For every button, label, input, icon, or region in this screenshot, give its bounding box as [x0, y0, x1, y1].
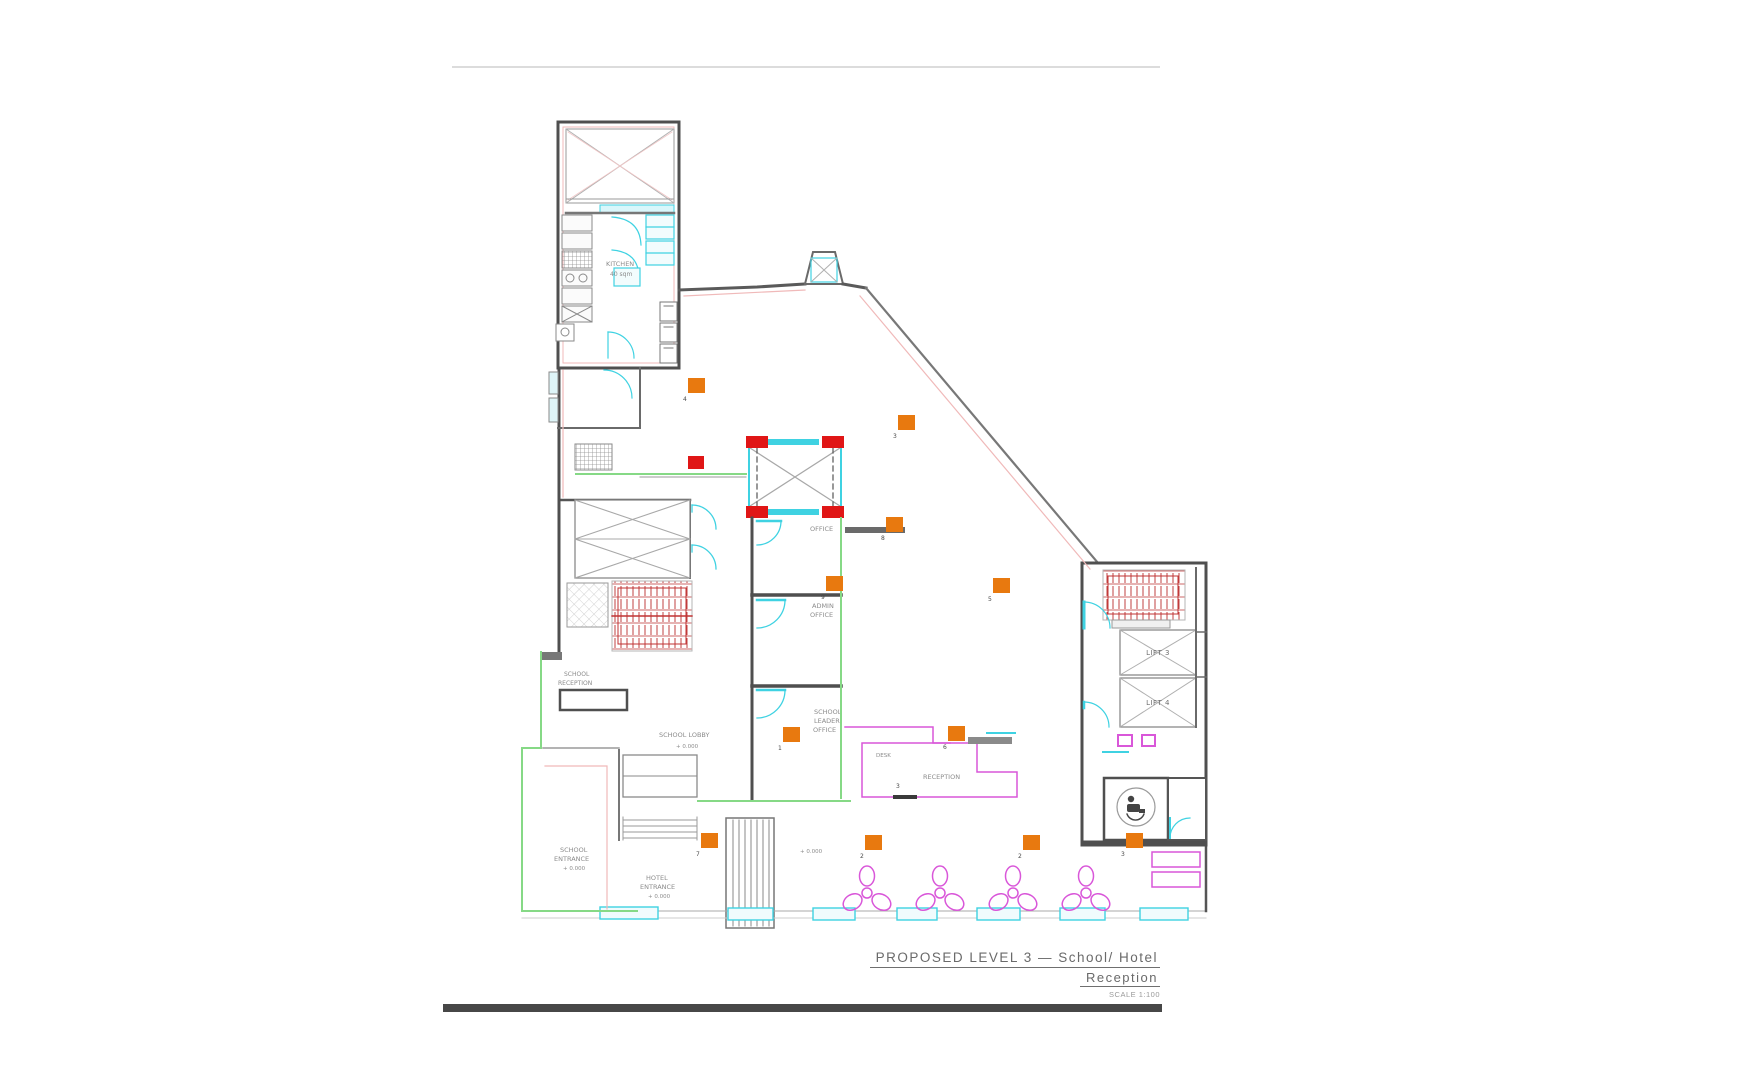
chair-clusters — [840, 866, 1113, 914]
chair-cluster — [986, 866, 1040, 914]
office-column: OFFICE ADMIN OFFICE SCHOOL LEADER OFFICE — [752, 518, 842, 800]
facade — [522, 845, 1206, 920]
camera-marker: 2 — [1018, 835, 1040, 860]
svg-text:3: 3 — [1121, 851, 1125, 858]
wc-room — [1104, 778, 1168, 840]
lift-3: LIFT 3 — [1120, 630, 1196, 675]
svg-text:1: 1 — [778, 745, 782, 752]
floor-plan: KITCHEN 40 sqm — [522, 122, 1206, 928]
chair-cluster — [840, 866, 894, 914]
camera-marker: 2 — [860, 835, 882, 860]
office-label: OFFICE — [810, 525, 833, 533]
hotel-entrance-label-1: HOTEL — [646, 874, 668, 882]
svg-text:3: 3 — [893, 433, 897, 440]
school-entrance-label-2: ENTRANCE — [554, 855, 589, 863]
drawing-title-line1: PROPOSED LEVEL 3 — School/ Hotel — [870, 950, 1160, 968]
reception-number: 3 — [896, 783, 900, 790]
lounge-tables — [1152, 852, 1200, 887]
kitchen-area-label: 40 sqm — [610, 271, 632, 278]
shelf-block — [575, 444, 612, 470]
hotel-entrance-label-2: ENTRANCE — [640, 883, 675, 891]
hotel-core: LIFT 3 LIFT 4 — [1082, 563, 1206, 887]
drawing-scale: SCALE 1:100 — [1109, 990, 1160, 999]
page: KITCHEN 40 sqm — [0, 0, 1755, 1080]
school-stair — [612, 581, 692, 651]
camera-marker: 6 — [943, 726, 965, 751]
lift-4: LIFT 4 — [1120, 678, 1196, 727]
camera-marker: 9 — [821, 576, 843, 601]
camera-marker: 1 — [778, 727, 800, 752]
reception-desk — [560, 690, 627, 710]
wall-junction-marker — [688, 456, 704, 469]
svg-text:2: 2 — [1018, 853, 1022, 860]
wall-stub — [540, 652, 562, 660]
admin-office-label-1: ADMIN — [812, 602, 834, 610]
hall-boundary — [679, 252, 1098, 563]
svg-text:4: 4 — [683, 396, 687, 403]
reception-label: RECEPTION — [923, 773, 960, 781]
hall-level: + 0.000 — [800, 849, 823, 855]
school-entrance-level: + 0.000 — [563, 866, 586, 872]
void-hatch-block — [567, 583, 608, 627]
admin-office-label-2: OFFICE — [810, 611, 833, 619]
title-block: PROPOSED LEVEL 3 — School/ Hotel Recepti… — [870, 950, 1160, 999]
svg-text:8: 8 — [881, 535, 885, 542]
school-lobby-label: SCHOOL LOBBY — [659, 731, 710, 739]
chair-cluster — [1059, 866, 1113, 914]
camera-marker: 3 — [893, 415, 915, 440]
shaft-corner — [746, 436, 768, 448]
school-leader-label-1: SCHOOL — [814, 708, 842, 716]
office-doors — [757, 521, 785, 718]
school-core — [540, 444, 746, 660]
lift4-label: LIFT 4 — [1146, 699, 1170, 707]
school-reception-label-2: RECEPTION — [558, 680, 592, 687]
hotel-entrance-level: + 0.000 — [648, 894, 671, 900]
svg-text:5: 5 — [988, 596, 992, 603]
lobby-entrances: SCHOOL LOBBY + 0.000 SCHOOL ENTRANCE + 0… — [543, 731, 823, 928]
kitchen-label: KITCHEN — [606, 260, 634, 268]
entry-steps — [623, 817, 697, 840]
reception-zone: DESK RECEPTION 3 — [845, 727, 1017, 797]
core-side-room — [1168, 778, 1206, 840]
kitchen-wing: KITCHEN 40 sqm — [556, 122, 679, 368]
school-reception-label-1: SCHOOL — [564, 671, 590, 678]
svg-text:7: 7 — [696, 851, 700, 858]
central-shaft — [688, 436, 905, 533]
camera-marker: 7 — [696, 833, 718, 858]
lobby-level: + 0.000 — [676, 744, 699, 750]
school-lift-shaft — [575, 500, 690, 578]
floor-plan-drawing: KITCHEN 40 sqm — [0, 0, 1755, 1080]
school-reception-area: SCHOOL RECEPTION — [558, 671, 627, 710]
shaft-corner — [822, 506, 844, 518]
svg-text:2: 2 — [860, 853, 864, 860]
camera-marker: 4 — [683, 378, 705, 403]
svg-text:6: 6 — [943, 744, 947, 751]
school-core-doors — [692, 505, 716, 569]
school-entrance-label-1: SCHOOL — [560, 846, 588, 854]
kitchen-cabinets — [660, 302, 677, 363]
shaft-corner — [822, 436, 844, 448]
camera-marker: 5 — [988, 578, 1010, 603]
drawing-title-line2: Reception — [1080, 970, 1160, 987]
hotel-stair — [1103, 570, 1185, 628]
school-leader-label-2: LEADER — [814, 717, 840, 725]
svg-text:9: 9 — [821, 594, 825, 601]
reception-desk-label: DESK — [876, 753, 891, 759]
lift3-label: LIFT 3 — [1146, 649, 1170, 657]
shaft-corner — [746, 506, 768, 518]
school-leader-label-3: OFFICE — [813, 726, 836, 734]
chair-cluster — [913, 866, 967, 914]
